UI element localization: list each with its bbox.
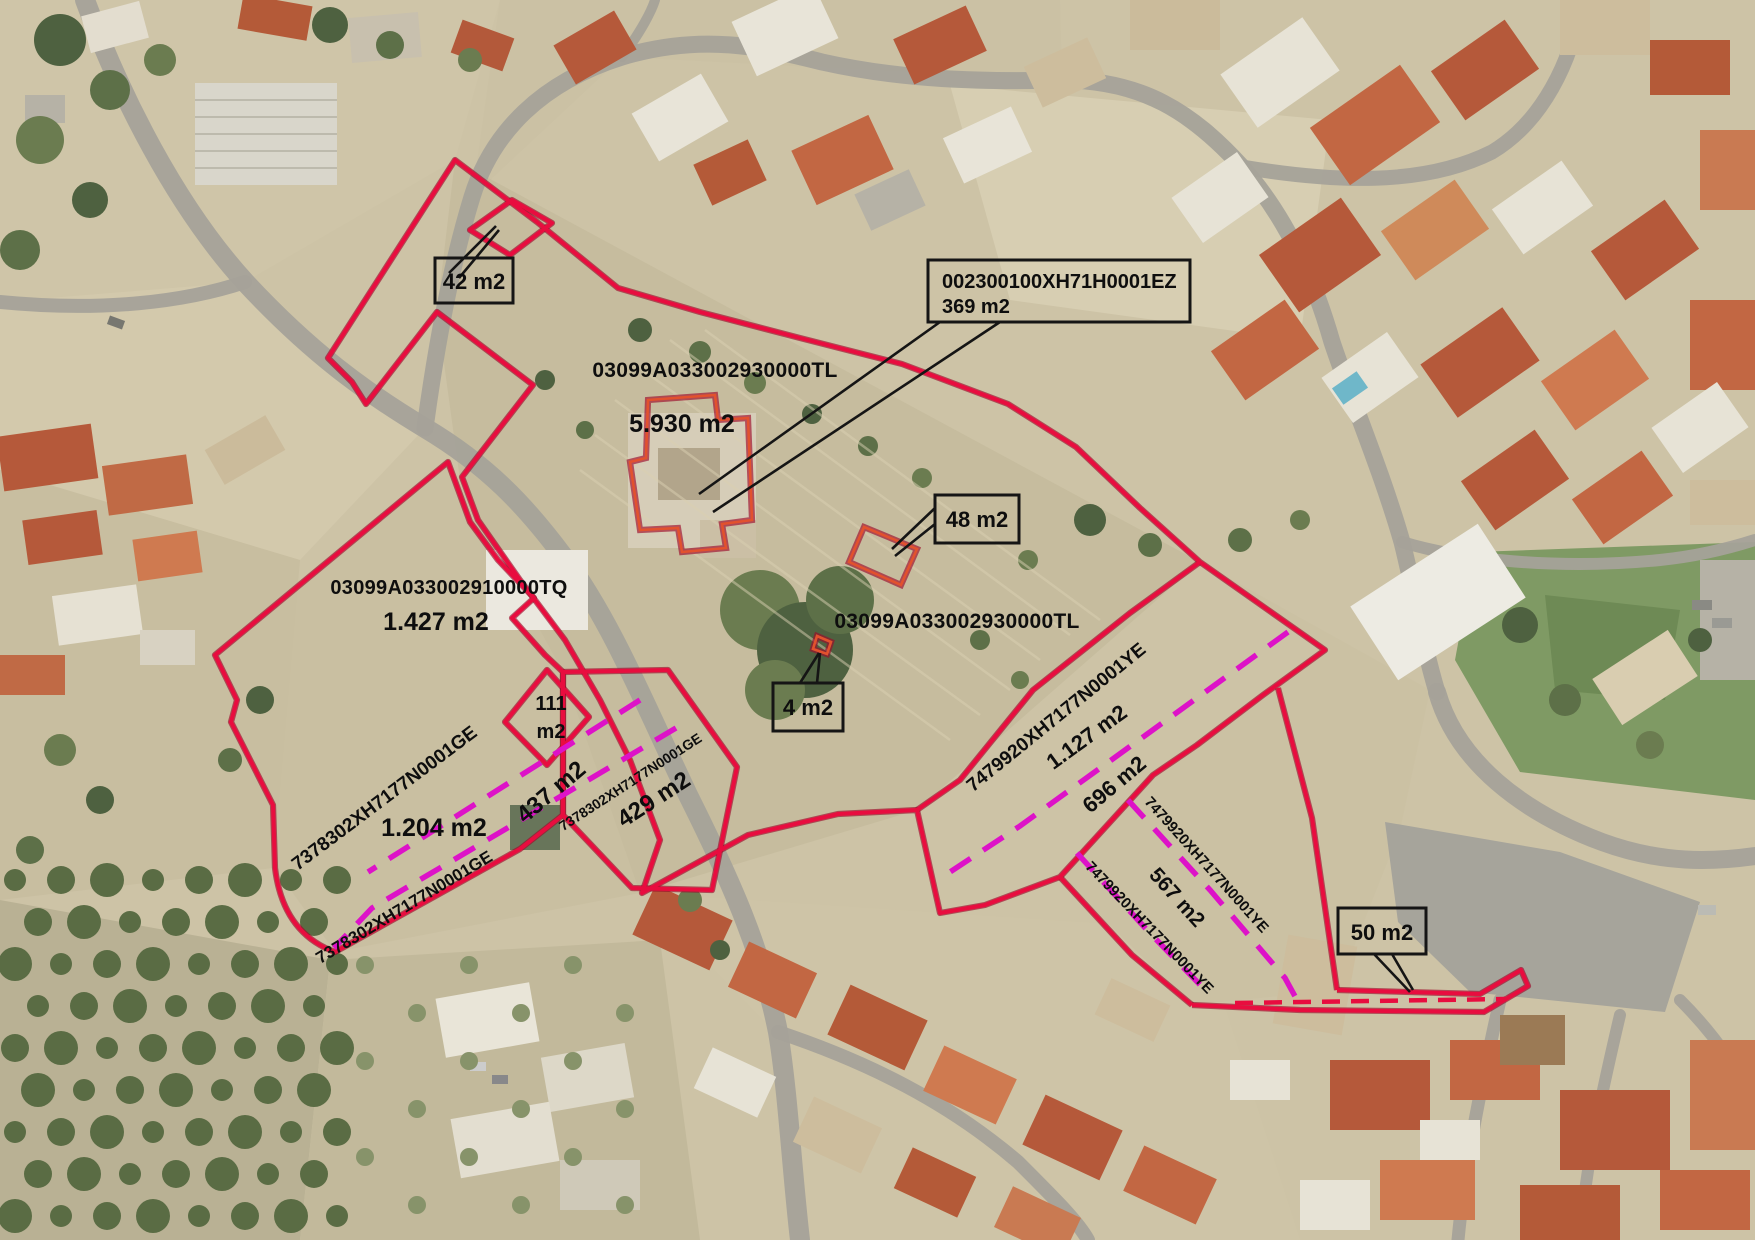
tree [628, 318, 652, 342]
callout-42-label: 42 m2 [443, 269, 505, 294]
olive-tree [93, 950, 121, 978]
tree [44, 734, 76, 766]
olive-tree [460, 1052, 478, 1070]
parcel-area-111-line2: m2 [537, 721, 566, 743]
olive-tree [90, 1115, 124, 1149]
olive-tree [93, 1202, 121, 1230]
tree [1636, 731, 1664, 759]
olive-tree [4, 869, 26, 891]
building [1420, 1120, 1480, 1160]
tree [1549, 684, 1581, 716]
olive-tree [356, 1052, 374, 1070]
tree [16, 836, 44, 864]
building [1692, 600, 1712, 610]
olive-tree [564, 1148, 582, 1166]
olive-tree [159, 1073, 193, 1107]
building [1560, 1090, 1670, 1170]
building [1130, 0, 1220, 50]
olive-tree [185, 1118, 213, 1146]
olive-tree [228, 863, 262, 897]
olive-tree [1, 1034, 29, 1062]
olive-tree [326, 1205, 348, 1227]
building [1520, 1185, 1620, 1240]
callout-369-area: 369 m2 [942, 296, 1010, 318]
tree [1290, 510, 1310, 530]
olive-tree [616, 1004, 634, 1022]
tree [970, 630, 990, 650]
olive-tree [96, 1037, 118, 1059]
callout-369-ref: 002300100XH71H0001EZ [942, 271, 1177, 293]
building [1690, 1040, 1755, 1150]
tree [34, 14, 86, 66]
building [1690, 300, 1755, 390]
olive-tree [50, 1205, 72, 1227]
aerial-map-svg: 03099A033002930000TL 5.930 m2 03099A0330… [0, 0, 1755, 1240]
building [1650, 40, 1730, 95]
olive-tree [27, 995, 49, 1017]
callout-4-label: 4 m2 [783, 695, 833, 720]
olive-tree [323, 1118, 351, 1146]
tree [1138, 533, 1162, 557]
tree [458, 48, 482, 72]
olive-tree [73, 1079, 95, 1101]
building [1660, 1170, 1750, 1230]
parcel-ref-tq: 03099A033002910000TQ [330, 577, 567, 599]
olive-tree [323, 866, 351, 894]
olive-tree [251, 989, 285, 1023]
building [492, 1075, 508, 1084]
building [0, 655, 65, 695]
tree [1228, 528, 1252, 552]
olive-tree [234, 1037, 256, 1059]
olive-tree [162, 1160, 190, 1188]
olive-tree [205, 905, 239, 939]
building [1330, 1060, 1430, 1130]
olive-tree [274, 947, 308, 981]
tree [1502, 607, 1538, 643]
olive-tree [4, 1121, 26, 1143]
olive-tree [274, 1199, 308, 1233]
parcel-ref-tl-2: 03099A033002930000TL [834, 610, 1079, 633]
tree [90, 70, 130, 110]
tree [710, 940, 730, 960]
tree [0, 230, 40, 270]
olive-tree [139, 1034, 167, 1062]
olive-tree [257, 911, 279, 933]
olive-tree [162, 908, 190, 936]
tree [144, 44, 176, 76]
olive-tree [460, 956, 478, 974]
tree [1011, 671, 1029, 689]
olive-tree [257, 1163, 279, 1185]
olive-tree [228, 1115, 262, 1149]
olive-tree [142, 869, 164, 891]
olive-tree [136, 1199, 170, 1233]
building [1698, 905, 1716, 915]
olive-tree [205, 1157, 239, 1191]
olive-tree [320, 1031, 354, 1065]
cadastral-map-stage: 03099A033002930000TL 5.930 m2 03099A0330… [0, 0, 1755, 1240]
olive-tree [564, 956, 582, 974]
olive-tree [616, 1100, 634, 1118]
olive-tree [47, 1118, 75, 1146]
olive-tree [231, 1202, 259, 1230]
olive-tree [185, 866, 213, 894]
tree [16, 116, 64, 164]
olive-tree [512, 1004, 530, 1022]
building [140, 630, 195, 665]
olive-tree [90, 863, 124, 897]
tree [1074, 504, 1106, 536]
olive-tree [113, 989, 147, 1023]
olive-tree [460, 1148, 478, 1166]
olive-tree [70, 992, 98, 1020]
olive-tree [21, 1073, 55, 1107]
olive-tree [119, 1163, 141, 1185]
olive-tree [408, 1004, 426, 1022]
tree [576, 421, 594, 439]
olive-tree [280, 1121, 302, 1143]
olive-tree [142, 1121, 164, 1143]
olive-tree [211, 1079, 233, 1101]
parcel-area-1204: 1.204 m2 [381, 814, 487, 842]
olive-tree [50, 953, 72, 975]
callout-50-label: 50 m2 [1351, 920, 1413, 945]
building [1500, 1015, 1565, 1065]
olive-tree [24, 908, 52, 936]
olive-tree [188, 953, 210, 975]
callout-48-label: 48 m2 [946, 507, 1008, 532]
tree [376, 31, 404, 59]
building [1712, 618, 1732, 628]
olive-tree [512, 1100, 530, 1118]
olive-tree [231, 950, 259, 978]
olive-tree [136, 947, 170, 981]
olive-tree [512, 1196, 530, 1214]
olive-tree [67, 905, 101, 939]
olive-tree [208, 992, 236, 1020]
building [132, 531, 202, 582]
tree [72, 182, 108, 218]
tree [218, 748, 242, 772]
olive-tree [300, 1160, 328, 1188]
olive-tree [297, 1073, 331, 1107]
olive-tree [408, 1196, 426, 1214]
parcel-area-tl: 5.930 m2 [629, 410, 735, 438]
olive-tree [116, 1076, 144, 1104]
building [1700, 130, 1755, 210]
olive-tree [356, 956, 374, 974]
olive-tree [303, 995, 325, 1017]
olive-tree [188, 1205, 210, 1227]
parcel-ref-tl: 03099A033002930000TL [592, 359, 837, 382]
building [1230, 1060, 1290, 1100]
olive-tree [67, 1157, 101, 1191]
building [1380, 1160, 1475, 1220]
olive-tree [44, 1031, 78, 1065]
tree [86, 786, 114, 814]
olive-tree [616, 1196, 634, 1214]
olive-tree [119, 911, 141, 933]
olive-tree [356, 1148, 374, 1166]
building [1560, 0, 1650, 55]
olive-tree [254, 1076, 282, 1104]
olive-tree [165, 995, 187, 1017]
olive-tree [564, 1052, 582, 1070]
olive-tree [47, 866, 75, 894]
building [1300, 1180, 1370, 1230]
tree [535, 370, 555, 390]
olive-tree [408, 1100, 426, 1118]
tree [246, 686, 274, 714]
tree [312, 7, 348, 43]
parcel-area-tq: 1.427 m2 [383, 608, 489, 636]
olive-tree [277, 1034, 305, 1062]
building [1690, 480, 1755, 525]
tree [1688, 628, 1712, 652]
olive-tree [182, 1031, 216, 1065]
parcel-area-111-line1: 111 [535, 693, 566, 715]
olive-tree [24, 1160, 52, 1188]
